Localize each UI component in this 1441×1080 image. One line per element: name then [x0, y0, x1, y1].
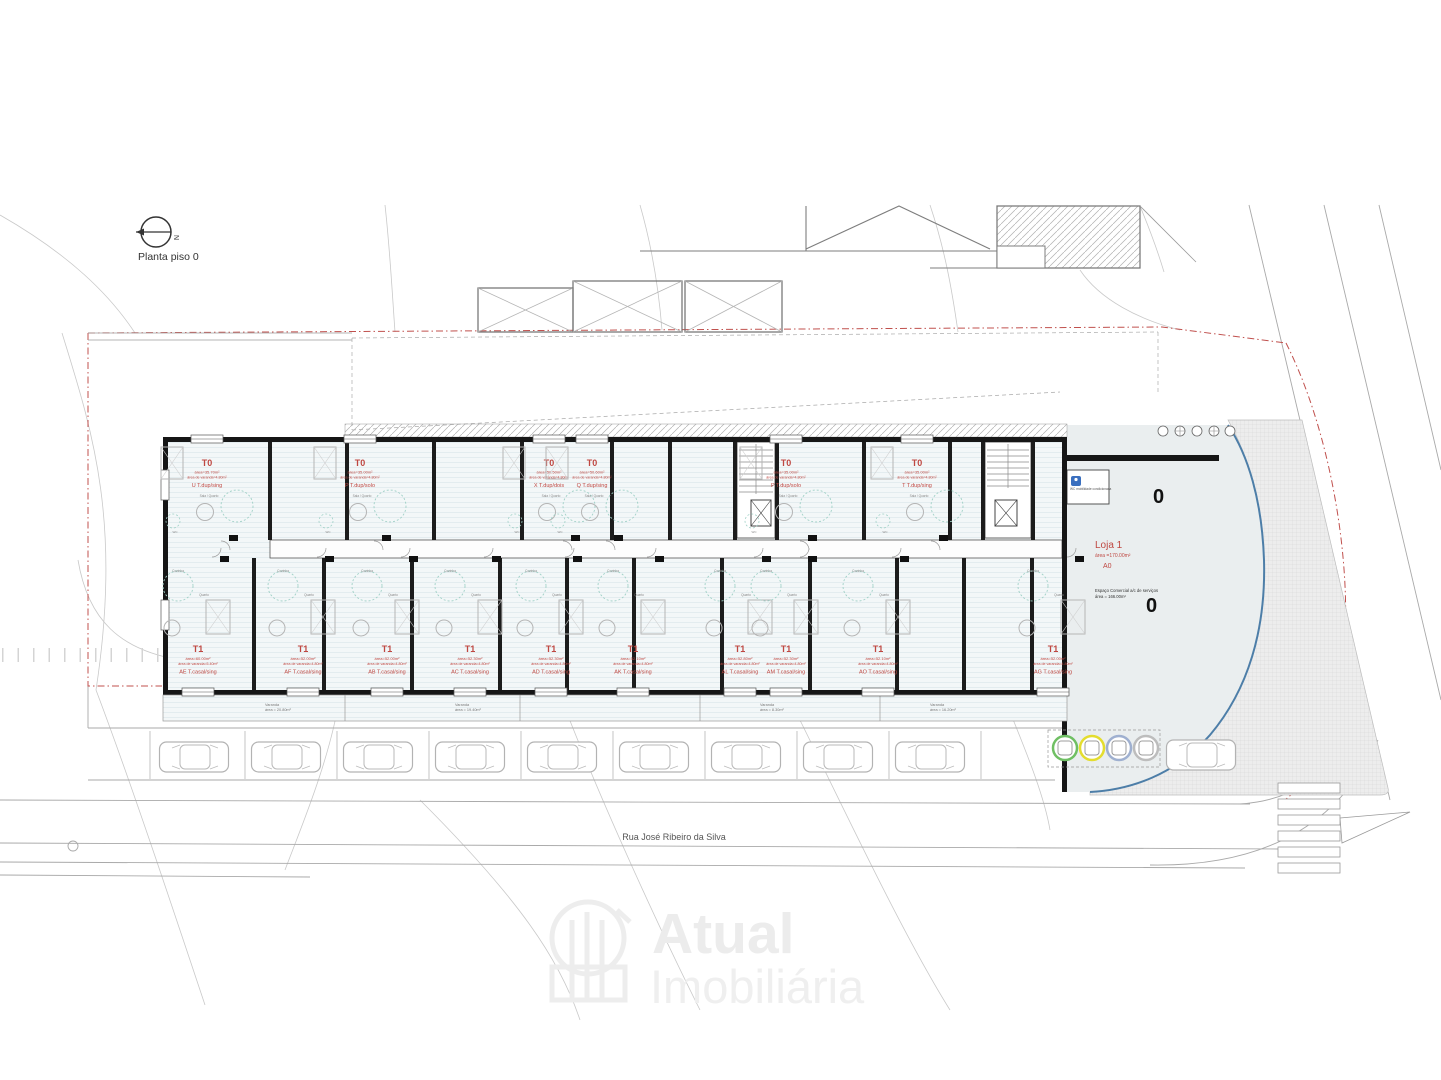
varanda-label-1: Varanda — [265, 703, 280, 707]
car-icon — [896, 742, 965, 772]
svg-text:área de varanda=4.80m²: área de varanda=4.80m² — [531, 662, 571, 666]
car-icon — [1167, 740, 1236, 770]
svg-text:AD T.casal/sing: AD T.casal/sing — [532, 670, 570, 676]
loja-note2: área = 166.00m² — [1095, 594, 1126, 599]
svg-text:AO T.casal/sing: AO T.casal/sing — [859, 670, 897, 676]
loja-code: A0 — [1103, 563, 1112, 570]
svg-text:T1: T1 — [735, 644, 746, 654]
svg-text:T0: T0 — [544, 458, 555, 468]
svg-text:área=52.00m²: área=52.00m² — [1040, 656, 1066, 661]
svg-text:T0: T0 — [202, 458, 213, 468]
svg-text:Quarto: Quarto — [388, 593, 398, 597]
watermark-line2: Imobiliária — [650, 960, 865, 1013]
annex-buildings — [478, 281, 782, 332]
svg-text:T0: T0 — [781, 458, 792, 468]
svg-text:Quarto: Quarto — [741, 593, 751, 597]
bin-blue-icon — [1107, 736, 1131, 760]
svg-text:Sala / Quarto: Sala / Quarto — [779, 494, 798, 498]
svg-text:AB T.casal/sing: AB T.casal/sing — [368, 670, 406, 676]
varanda-area-2: área = 19.40m² — [455, 708, 482, 712]
bin-grey-icon — [1134, 736, 1158, 760]
svg-text:WC: WC — [883, 530, 889, 534]
svg-text:área de varanda=4.80m²: área de varanda=4.80m² — [766, 476, 806, 480]
svg-text:WC: WC — [752, 530, 758, 534]
svg-text:Quarto: Quarto — [879, 593, 889, 597]
svg-text:Quarto: Quarto — [199, 593, 209, 597]
svg-text:T1: T1 — [546, 644, 557, 654]
svg-text:AK T.casal/sing: AK T.casal/sing — [614, 670, 652, 676]
column-marker-1: 0 — [1153, 486, 1164, 508]
svg-text:área de varanda=4.80m²: área de varanda=4.80m² — [283, 662, 323, 666]
bin-green-icon — [1053, 736, 1077, 760]
svg-text:área de varanda=4.80m²: área de varanda=4.80m² — [720, 662, 760, 666]
loja-area: área =170.00m² — [1095, 553, 1131, 559]
svg-text:área=35.70m²: área=35.70m² — [194, 470, 220, 475]
svg-text:P T.dup/solo: P T.dup/solo — [771, 483, 801, 489]
svg-text:área=50.60m²: área=50.60m² — [579, 470, 605, 475]
bin-yellow-icon — [1080, 736, 1104, 760]
svg-text:Quarto: Quarto — [304, 593, 314, 597]
car-icon — [344, 742, 413, 772]
varanda-label-2: Varanda — [455, 703, 470, 707]
loja-wc-label: WC mobilidade condicionada — [1070, 487, 1112, 491]
svg-text:Quarto: Quarto — [634, 593, 644, 597]
svg-text:T1: T1 — [465, 644, 476, 654]
svg-text:Sala / Quarto: Sala / Quarto — [353, 494, 372, 498]
svg-text:T1: T1 — [193, 644, 204, 654]
manhole-icon — [68, 841, 78, 851]
svg-text:WC: WC — [326, 530, 332, 534]
svg-text:Cozinha: Cozinha — [172, 569, 184, 573]
svg-text:área de varanda=4.80m²: área de varanda=4.80m² — [187, 476, 227, 480]
svg-text:AF T.casal/sing: AF T.casal/sing — [284, 670, 321, 676]
svg-text:área=35.00m²: área=35.00m² — [773, 470, 799, 475]
svg-text:T0: T0 — [355, 458, 366, 468]
svg-text:área=52.00m²: área=52.00m² — [374, 656, 400, 661]
svg-text:área de varanda=4.80m²: área de varanda=4.80m² — [367, 662, 407, 666]
svg-text:T1: T1 — [628, 644, 639, 654]
svg-text:Sala / Quarto: Sala / Quarto — [585, 494, 604, 498]
car-icon — [252, 742, 321, 772]
street-name: Rua José Ribeiro da Silva — [622, 832, 726, 842]
watermark-line1: Atual — [652, 902, 795, 966]
svg-text:área=52.30m²: área=52.30m² — [457, 656, 483, 661]
svg-text:X T.dup/dois: X T.dup/dois — [534, 483, 564, 489]
svg-text:Sala / Quarto: Sala / Quarto — [910, 494, 929, 498]
svg-text:Quarto: Quarto — [471, 593, 481, 597]
neighbour-buildings — [640, 206, 1196, 268]
car-icon — [160, 742, 229, 772]
pedestrian-crossing — [1278, 783, 1340, 873]
loja-top-wall — [1067, 455, 1219, 461]
car-icon — [804, 742, 873, 772]
svg-text:Cozinha: Cozinha — [1027, 569, 1039, 573]
svg-text:T1: T1 — [781, 644, 792, 654]
svg-text:T0: T0 — [912, 458, 923, 468]
svg-text:Quarto: Quarto — [552, 593, 562, 597]
svg-text:Sala / Quarto: Sala / Quarto — [200, 494, 219, 498]
column-marker-2: 0 — [1146, 595, 1157, 617]
svg-text:área=35.00m²: área=35.00m² — [347, 470, 373, 475]
svg-text:WC: WC — [558, 530, 564, 534]
svg-text:U T.dup/sing: U T.dup/sing — [192, 483, 222, 489]
svg-text:Cozinha: Cozinha — [760, 569, 772, 573]
svg-text:AL T.casal/sing: AL T.casal/sing — [722, 670, 759, 676]
svg-text:área de varanda=4.80m²: área de varanda=4.80m² — [858, 662, 898, 666]
svg-text:Cozinha: Cozinha — [525, 569, 537, 573]
svg-text:área de varanda=4.80m²: área de varanda=4.80m² — [613, 662, 653, 666]
svg-text:área=52.30m²: área=52.30m² — [773, 656, 799, 661]
svg-text:Cozinha: Cozinha — [852, 569, 864, 573]
svg-text:área de varanda=4.80m²: área de varanda=4.80m² — [450, 662, 490, 666]
varanda-area-1: área = 20.80m² — [265, 708, 292, 712]
car-icon — [712, 742, 781, 772]
floor-plan-canvas: T0área=35.70m²área de varanda=4.80m²U T.… — [0, 0, 1441, 1080]
svg-text:Sala / Quarto: Sala / Quarto — [542, 494, 561, 498]
svg-text:T1: T1 — [873, 644, 884, 654]
svg-text:T1: T1 — [298, 644, 309, 654]
svg-text:AG T.casal/sing: AG T.casal/sing — [1034, 670, 1072, 676]
varanda-area-4: área = 16.20m² — [930, 708, 957, 712]
svg-text:Cozinha: Cozinha — [714, 569, 726, 573]
svg-text:área=52.30m²: área=52.30m² — [538, 656, 564, 661]
svg-text:Cozinha: Cozinha — [277, 569, 289, 573]
car-icon — [436, 742, 505, 772]
svg-text:Quarto: Quarto — [787, 593, 797, 597]
svg-text:AE T.casal/sing: AE T.casal/sing — [179, 670, 217, 676]
svg-text:área=52.80m²: área=52.80m² — [727, 656, 753, 661]
plan-title: Planta piso 0 — [138, 251, 199, 263]
svg-text:T0: T0 — [587, 458, 598, 468]
watermark-logo: Atual Imobiliária — [552, 902, 865, 1013]
svg-text:área=52.00m²: área=52.00m² — [290, 656, 316, 661]
svg-text:área=35.00m²: área=35.00m² — [904, 470, 930, 475]
svg-text:Q T.dup/sing: Q T.dup/sing — [577, 483, 608, 489]
svg-text:área de varanda=4.80m²: área de varanda=4.80m² — [1033, 662, 1073, 666]
loja-note1: Espaço Comercial a/c de serviços — [1095, 588, 1158, 593]
site-plan-drawing: T0área=35.70m²área de varanda=4.80m²U T.… — [0, 0, 1441, 1080]
svg-text:AC T.casal/sing: AC T.casal/sing — [451, 670, 489, 676]
svg-text:T T.dup/sing: T T.dup/sing — [902, 483, 932, 489]
svg-text:área=60.00m²: área=60.00m² — [185, 656, 211, 661]
svg-text:P T.dup/solo: P T.dup/solo — [345, 483, 375, 489]
north-arrow: N — [136, 217, 179, 247]
svg-text:Quarto: Quarto — [1054, 593, 1064, 597]
svg-text:área de varanda=4.80m²: área de varanda=4.80m² — [340, 476, 380, 480]
svg-text:T1: T1 — [1048, 644, 1059, 654]
car-icon — [620, 742, 689, 772]
svg-text:área=52.10m²: área=52.10m² — [620, 656, 646, 661]
svg-text:área de varanda=4.80m²: área de varanda=4.80m² — [766, 662, 806, 666]
svg-text:Cozinha: Cozinha — [444, 569, 456, 573]
svg-text:área de varanda=4.80m²: área de varanda=4.80m² — [572, 476, 612, 480]
svg-text:WC: WC — [515, 530, 521, 534]
svg-text:WC: WC — [173, 530, 179, 534]
varanda-area-3: área = 8.30m² — [760, 708, 784, 712]
varanda-label-3: Varanda — [760, 703, 775, 707]
svg-text:T1: T1 — [382, 644, 393, 654]
varanda-label-4: Varanda — [930, 703, 945, 707]
svg-text:AM T.casal/sing: AM T.casal/sing — [767, 670, 805, 676]
svg-text:área de varanda=5.40m²: área de varanda=5.40m² — [178, 662, 218, 666]
car-icon — [528, 742, 597, 772]
loja-name: Loja 1 — [1095, 540, 1123, 551]
svg-text:Cozinha: Cozinha — [361, 569, 373, 573]
svg-text:área=52.10m²: área=52.10m² — [865, 656, 891, 661]
svg-text:Cozinha: Cozinha — [607, 569, 619, 573]
svg-text:área de varanda=4.80m²: área de varanda=4.80m² — [897, 476, 937, 480]
north-letter: N — [172, 235, 179, 240]
